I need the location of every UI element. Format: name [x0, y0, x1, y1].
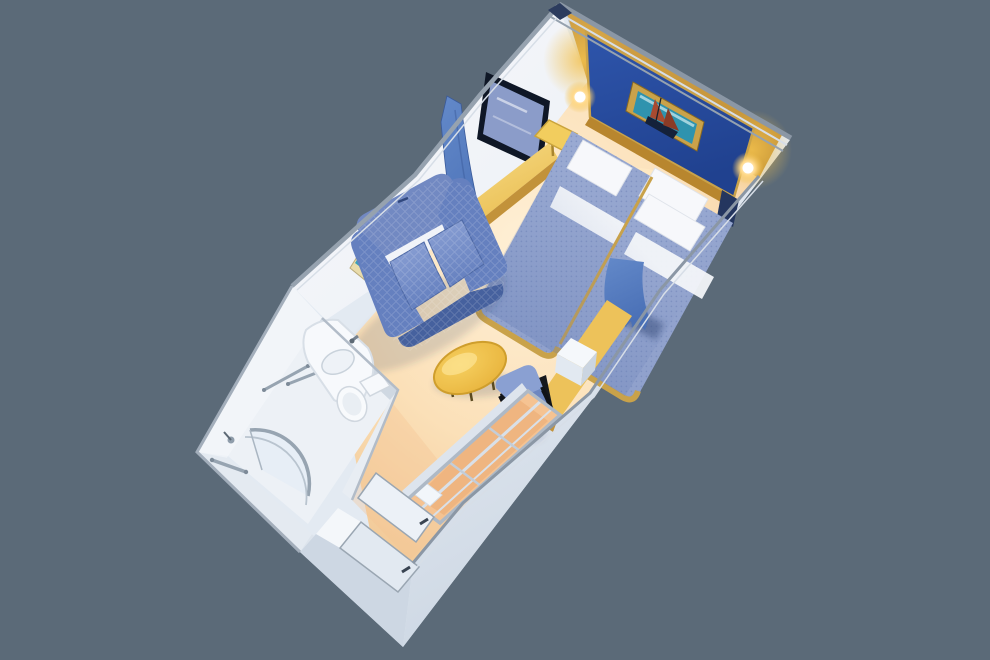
wall-sconce-right-bulb [743, 163, 754, 174]
grab-bar-mount [210, 458, 214, 462]
stateroom-floorplan-3d [0, 0, 990, 660]
towel-bar-mount [262, 388, 266, 392]
wall-sconce-left-bulb [575, 92, 586, 103]
grab-bar-mount [244, 470, 248, 474]
towel-bar-mount [286, 382, 290, 386]
stateroom-render-stage [0, 0, 990, 660]
faucet-base [350, 339, 355, 344]
